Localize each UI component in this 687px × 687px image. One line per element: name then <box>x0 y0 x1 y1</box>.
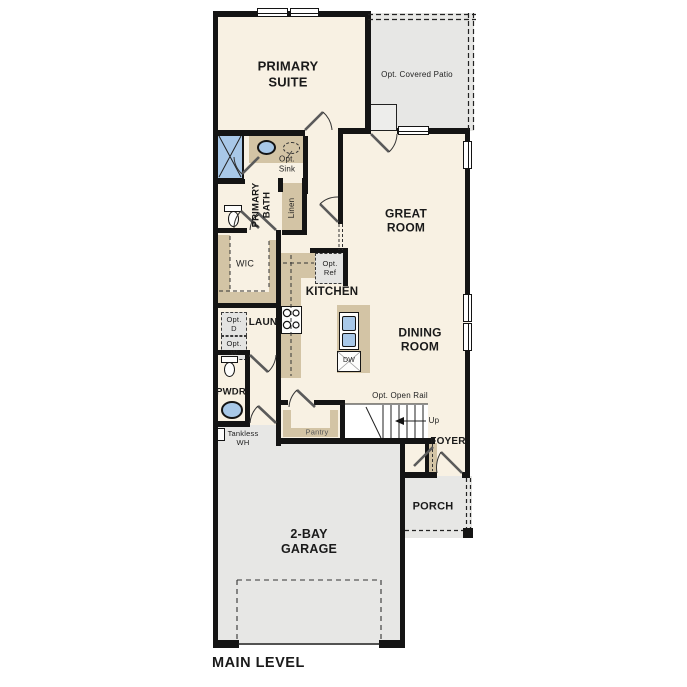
label-foyer: FOYER <box>430 436 465 448</box>
label-opt-sink: Opt. Sink <box>279 154 295 173</box>
wall-laundry-top <box>213 303 278 308</box>
label-great-room: GREAT ROOM <box>385 207 427 236</box>
label-pantry: Pantry <box>306 428 329 437</box>
island-sink-basin-1 <box>342 316 356 331</box>
patio-step <box>368 104 397 131</box>
label-wic: WIC <box>236 259 254 270</box>
wall-garage-top-left <box>213 421 250 427</box>
wall-greatroom-top-c <box>429 128 470 134</box>
pantry-shelf-right <box>330 410 338 437</box>
stairs-floor <box>345 404 428 439</box>
shower <box>216 133 244 180</box>
label-garage: 2-BAY GARAGE <box>281 527 337 557</box>
label-dishwasher: DW <box>343 357 355 365</box>
label-primary-bath: PRIMARY BATH <box>251 183 274 228</box>
wall-suite-bottom <box>213 130 305 136</box>
wall-foyer-bottom-b <box>462 472 470 478</box>
bath-toilet-bowl <box>228 211 239 227</box>
pwdr-toilet-bowl <box>224 362 235 377</box>
label-up: Up <box>429 416 440 426</box>
window-right-3 <box>463 323 472 351</box>
label-powder: PWDR <box>216 386 246 397</box>
label-linen: Linen <box>287 198 297 219</box>
kitchen-counter-top <box>281 253 315 278</box>
island-sink-basin-2 <box>342 333 356 347</box>
label-opt-washer: Opt. W <box>227 339 242 357</box>
wall-below-shower <box>213 179 245 184</box>
pwdr-sink <box>221 401 243 419</box>
wall-foyer-bottom-a <box>403 472 437 478</box>
wall-right-c <box>465 351 470 478</box>
wall-stairs-bottom <box>340 438 435 444</box>
wall-linen-bottom <box>282 230 307 235</box>
opt-sink-dashed <box>283 142 300 154</box>
vanity-sink <box>257 140 276 155</box>
wall-linen-left <box>278 178 283 192</box>
floor-plan: PRIMARY SUITE Opt. Covered Patio GREAT R… <box>0 0 687 687</box>
window-suite-2 <box>290 8 319 17</box>
wall-foyer-left <box>425 438 429 475</box>
label-dining-room: DINING ROOM <box>398 326 441 355</box>
label-opt-ref: Opt. Ref <box>323 259 338 277</box>
wall-suite-patio <box>365 11 371 134</box>
wall-hall-greatroom <box>338 134 343 224</box>
wall-fridge-right <box>343 250 348 286</box>
label-main-level: MAIN LEVEL <box>212 655 305 672</box>
label-opt-dryer: Opt. D <box>227 315 242 333</box>
window-suite-1 <box>257 8 288 17</box>
wall-pantry-bottom <box>276 438 348 444</box>
window-right-1 <box>463 141 472 169</box>
wall-garage-bottom-r <box>379 640 405 648</box>
label-primary-suite: PRIMARY SUITE <box>258 58 319 89</box>
label-kitchen: KITCHEN <box>306 286 359 300</box>
label-covered-patio: Opt. Covered Patio <box>381 70 453 80</box>
wall-garage-right <box>400 443 405 647</box>
label-tankless-wh: Tankless WH <box>228 429 259 447</box>
label-opt-open-rail: Opt. Open Rail <box>372 391 428 401</box>
wall-right-b <box>465 169 470 294</box>
wall-exterior-left <box>213 11 218 648</box>
wall-linen-right <box>302 178 307 235</box>
wall-garage-bottom-l <box>213 640 239 648</box>
window-right-2 <box>463 294 472 322</box>
wall-pantry-top-a <box>276 400 288 405</box>
range <box>281 306 302 334</box>
label-laundry: LAUN <box>249 317 278 329</box>
wall-kitchen-left <box>276 230 281 446</box>
window-greatroom <box>398 126 429 135</box>
wall-wic-top <box>213 228 247 233</box>
label-porch: PORCH <box>413 500 454 513</box>
